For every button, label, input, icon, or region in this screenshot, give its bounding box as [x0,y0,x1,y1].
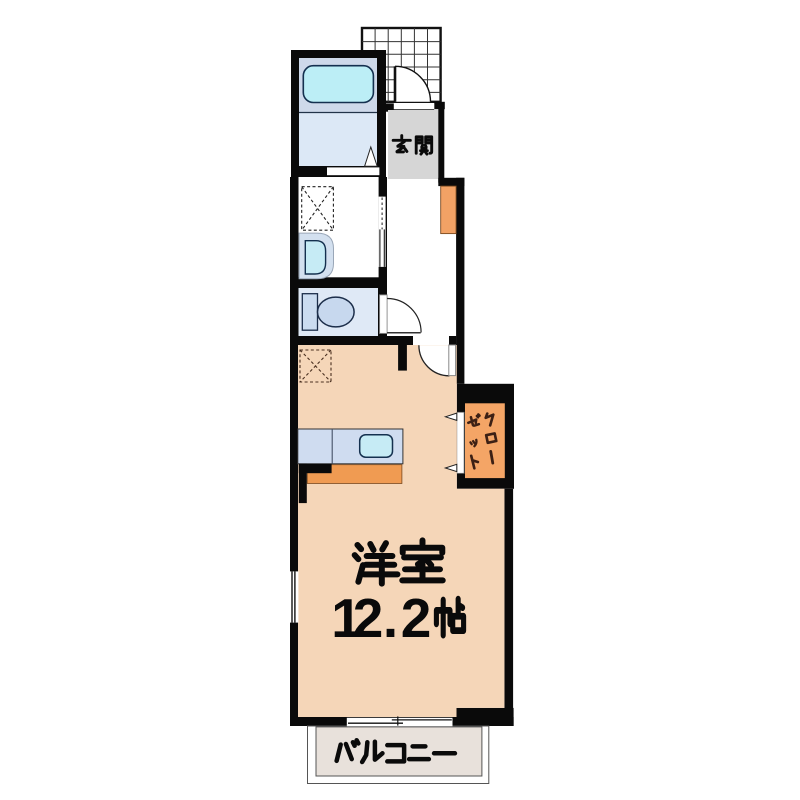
svg-text:2: 2 [401,587,432,649]
svg-text:.: . [383,587,398,649]
svg-text:2: 2 [353,587,384,649]
